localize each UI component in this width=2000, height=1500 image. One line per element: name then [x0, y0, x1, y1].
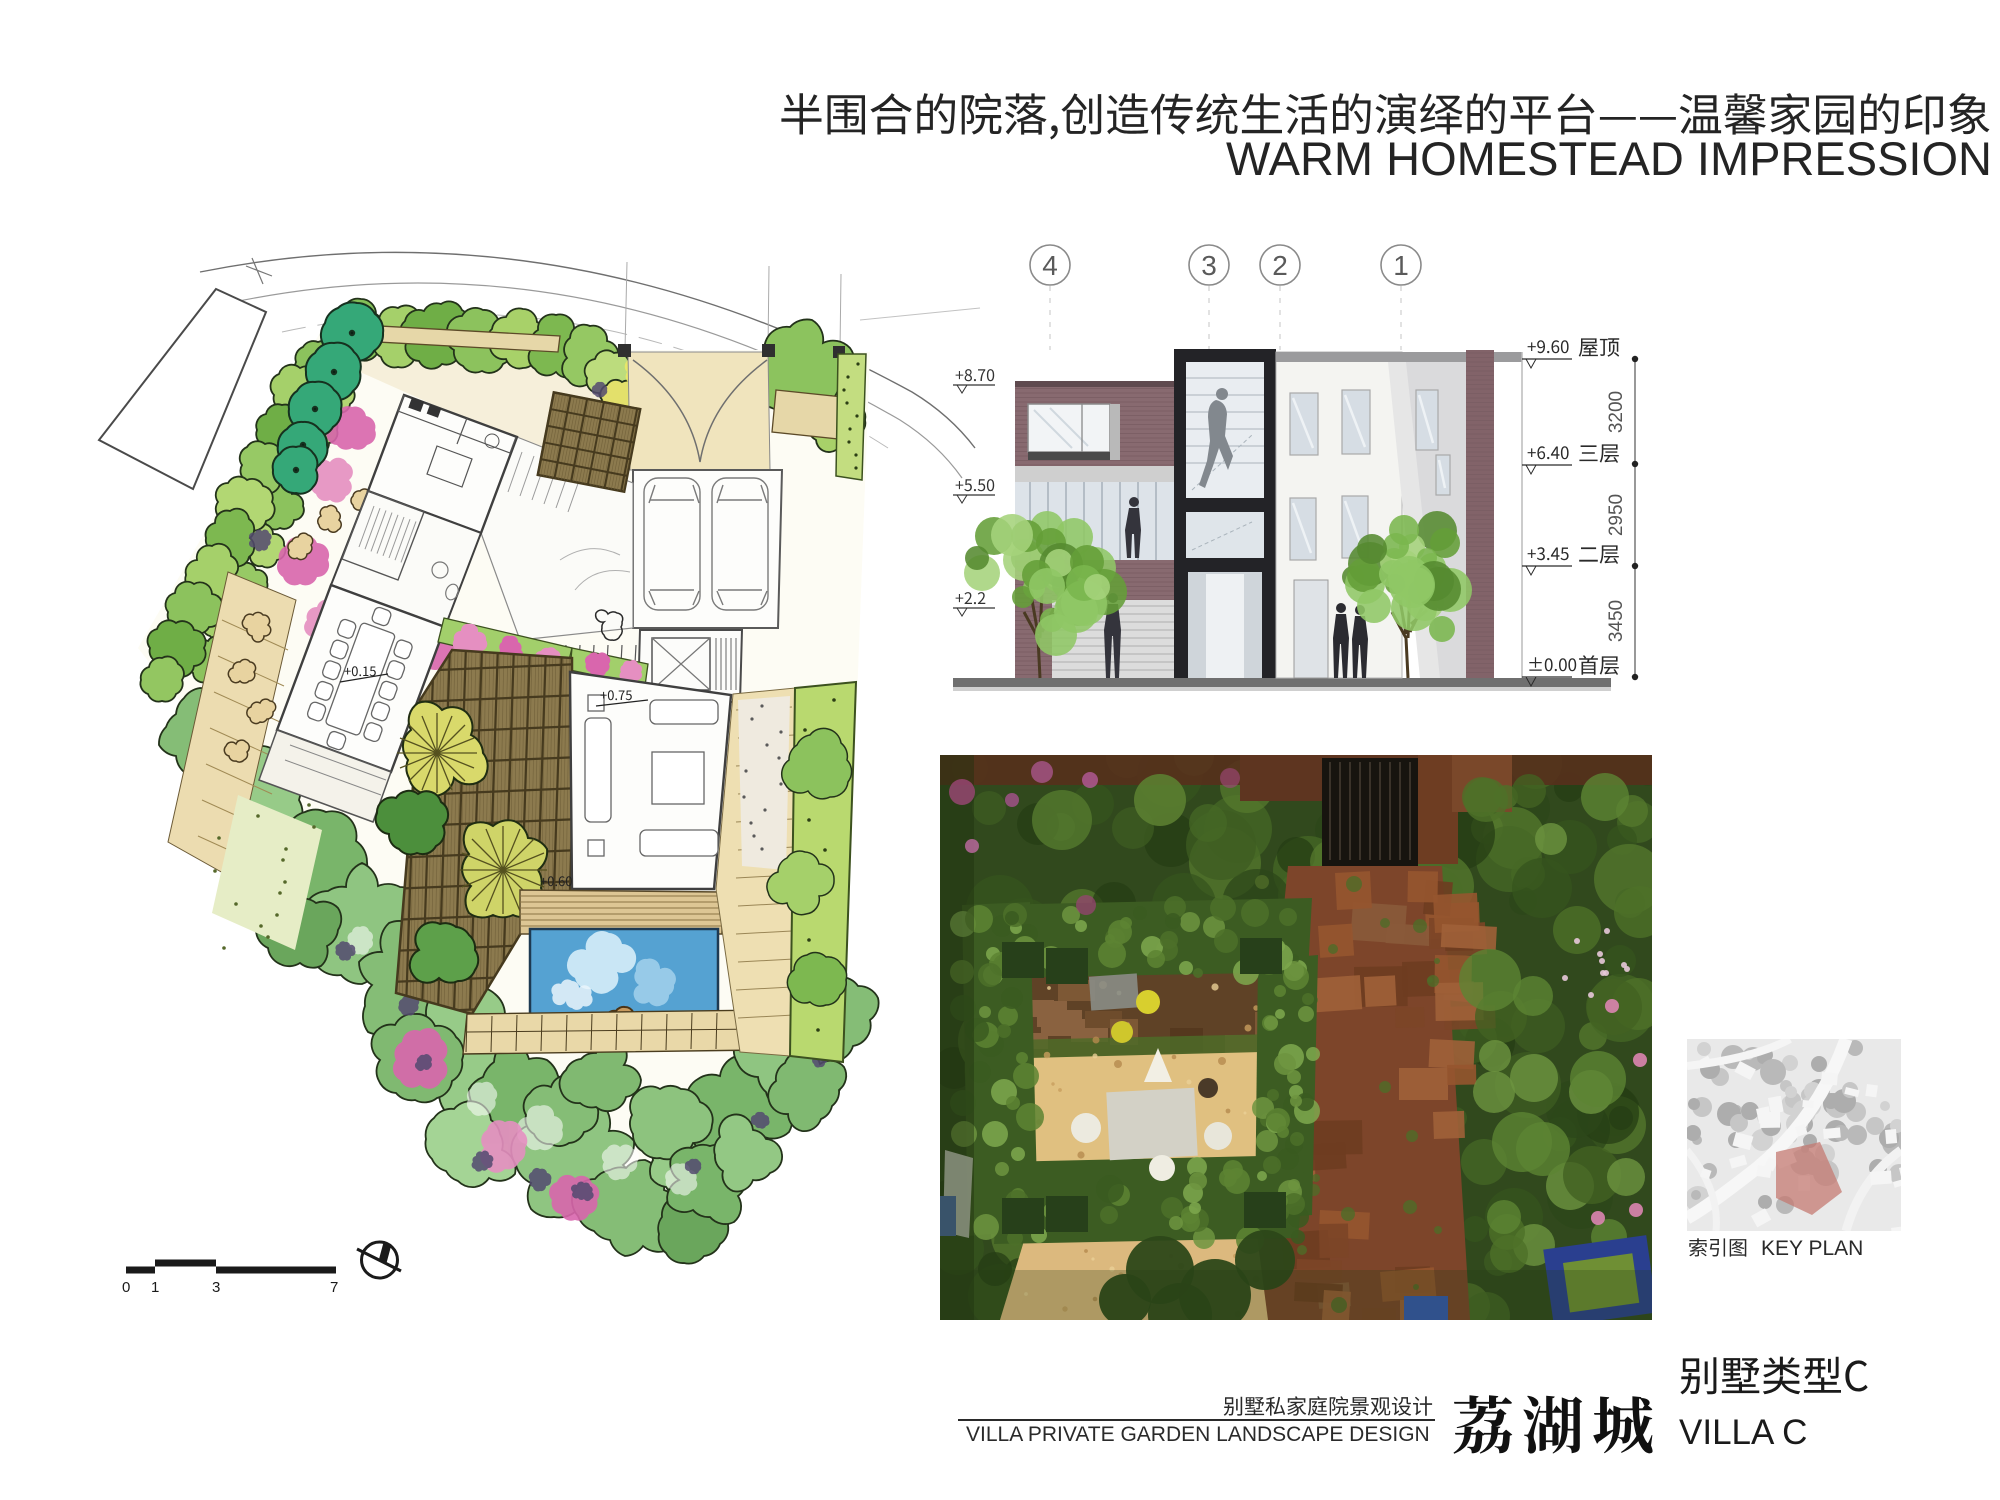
svg-text:VILLA PRIVATE GARDEN LANDSCAP: VILLA PRIVATE GARDEN LANDSCAPE DESIGN: [966, 1423, 1430, 1446]
svg-text:0: 0: [122, 1279, 130, 1296]
svg-text:VILLA C: VILLA C: [1679, 1413, 1807, 1452]
svg-text:1: 1: [1393, 250, 1409, 281]
svg-text:4: 4: [1042, 250, 1058, 281]
svg-text:3: 3: [1201, 250, 1217, 281]
svg-text:3200: 3200: [1606, 391, 1627, 433]
svg-text:1: 1: [151, 1279, 159, 1296]
svg-text:3450: 3450: [1606, 600, 1627, 642]
svg-text:WARM HOMESTEAD IMPRESSION: WARM HOMESTEAD IMPRESSION: [1226, 132, 1992, 185]
svg-text:2: 2: [1272, 250, 1288, 281]
svg-text:3: 3: [212, 1279, 220, 1296]
svg-text:7: 7: [330, 1279, 338, 1296]
svg-text:KEY PLAN: KEY PLAN: [1761, 1237, 1863, 1260]
svg-text:2950: 2950: [1606, 494, 1627, 536]
